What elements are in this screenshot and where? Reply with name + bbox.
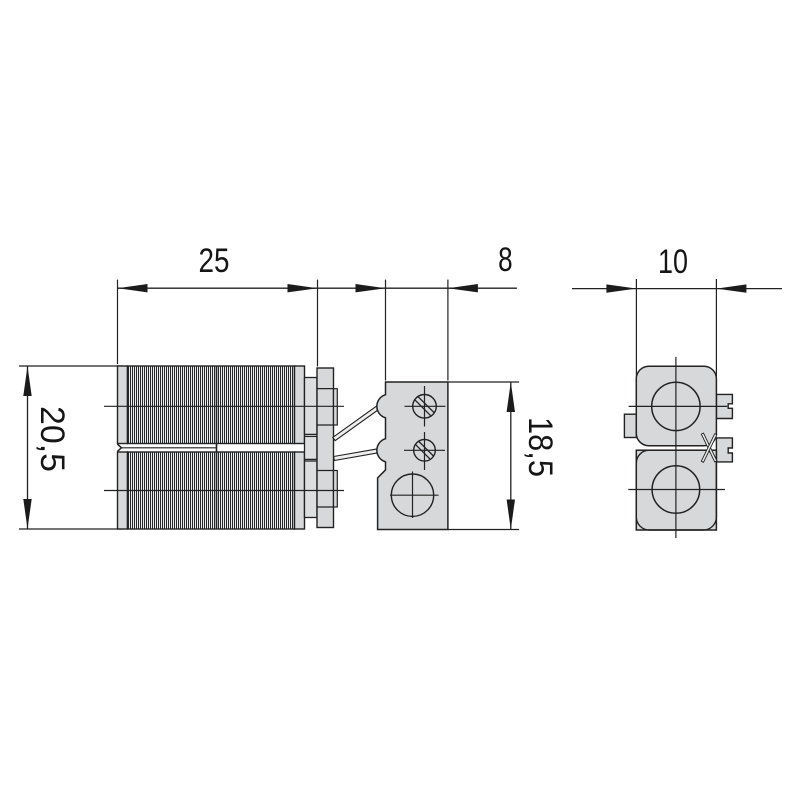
svg-text:25: 25 [199,242,230,280]
svg-text:8: 8 [498,241,513,279]
svg-text:18,5: 18,5 [521,417,559,477]
svg-text:10: 10 [658,243,688,281]
svg-text:20,5: 20,5 [33,406,71,472]
